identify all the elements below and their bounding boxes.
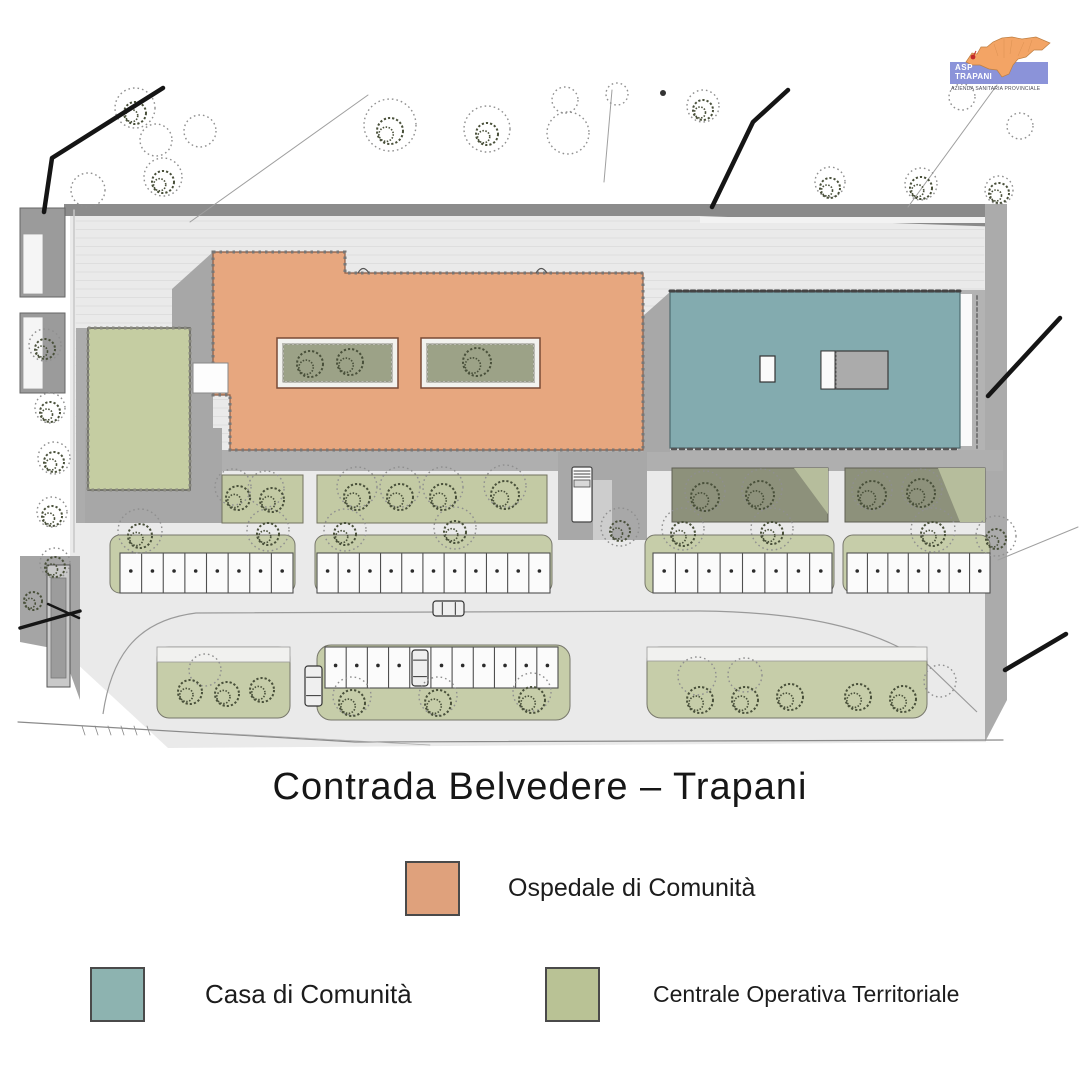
tree-canopy <box>37 497 67 527</box>
wheel-stop-dot <box>482 664 486 668</box>
wheel-stop-dot <box>797 569 801 573</box>
legend-label-cot: Centrale Operativa Territoriale <box>653 967 959 1022</box>
survey-line <box>190 95 368 222</box>
wheel-stop-dot <box>172 569 176 573</box>
shrub-detail <box>44 513 55 524</box>
tree-canopy <box>547 112 589 154</box>
boundary-tick <box>121 726 124 735</box>
wheel-stop-dot <box>752 569 756 573</box>
wheel-stop-dot <box>917 569 921 573</box>
casa-east-walkway <box>960 294 972 446</box>
car <box>412 650 428 686</box>
tree-canopy <box>815 167 845 197</box>
wheel-stop-dot <box>685 569 689 573</box>
wheel-stop-dot <box>730 569 734 573</box>
shrub <box>152 171 174 193</box>
casa-roof-canopy-light <box>821 351 835 389</box>
tree-canopy <box>184 115 216 147</box>
wheel-stop-dot <box>546 664 550 668</box>
legend-swatch-casa <box>90 967 145 1022</box>
tree-canopy <box>606 83 628 105</box>
tree-canopy <box>38 442 70 474</box>
wheel-stop-dot <box>129 569 133 573</box>
tree-canopy <box>687 90 719 122</box>
wheel-stop-dot <box>389 569 393 573</box>
boundary-tick <box>95 726 98 735</box>
wheel-stop-dot <box>495 569 499 573</box>
wheel-stop-dot <box>397 664 401 668</box>
legend-swatch-cot <box>545 967 600 1022</box>
wheel-stop-dot <box>937 569 941 573</box>
parking-stall-group <box>325 647 558 688</box>
van-windshield <box>574 480 590 487</box>
shrub-detail <box>822 185 833 196</box>
tree-canopy <box>140 124 172 156</box>
legend-label-ospedale: Ospedale di Comunità <box>508 861 755 916</box>
wheel-stop-dot <box>237 569 241 573</box>
wheel-stop-dot <box>819 569 823 573</box>
shrub-detail <box>46 459 57 470</box>
ospedale-entrance-canopy <box>193 363 228 393</box>
wheel-stop-dot <box>896 569 900 573</box>
wheel-stop-dot <box>453 569 457 573</box>
wheel-stop-dot <box>347 569 351 573</box>
asp-trapani-logo: ASP TRAPANI AZIENDA SANITARIA PROVINCIAL… <box>948 36 1054 94</box>
existing-building-south-court <box>23 317 43 389</box>
shrub-detail <box>42 409 53 420</box>
van <box>572 467 592 522</box>
island-footpath <box>157 647 290 662</box>
legend-swatch-ospedale <box>405 861 460 916</box>
wheel-stop-dot <box>376 664 380 668</box>
legend-label-casa: Casa di Comunità <box>205 967 412 1022</box>
site-plan-page: Contrada Belvedere – Trapani Ospedale di… <box>0 0 1080 1080</box>
southwest-structure-inner <box>51 578 66 678</box>
site-plan-drawing <box>0 0 1080 760</box>
site-east-border <box>985 204 1007 742</box>
casa-di-comunita-building <box>670 292 960 448</box>
wheel-stop-dot <box>978 569 982 573</box>
wheel-stop-dot <box>707 569 711 573</box>
boundary-wall <box>44 88 163 212</box>
wheel-stop-dot <box>355 664 359 668</box>
wheel-stop-dot <box>368 569 372 573</box>
survey-line <box>998 527 1078 560</box>
boundary-tick <box>134 726 137 735</box>
wheel-stop-dot <box>524 664 528 668</box>
logo-org-text: ASP <box>955 63 973 72</box>
wheel-stop-dot <box>194 569 198 573</box>
north-walkway <box>700 217 995 223</box>
shrub-detail <box>991 190 1002 201</box>
tree-canopy <box>35 393 65 423</box>
wheel-stop-dot <box>326 569 330 573</box>
wheel-stop-dot <box>280 569 284 573</box>
logo-subtitle-text: AZIENDA SANITARIA PROVINCIALE <box>951 86 1040 92</box>
wheel-stop-dot <box>259 569 263 573</box>
survey-line <box>908 85 997 207</box>
existing-building-north-court <box>23 234 43 294</box>
car <box>433 601 464 616</box>
car <box>305 666 322 706</box>
wheel-stop-dot <box>774 569 778 573</box>
wheel-stop-dot <box>440 664 444 668</box>
boundary-tick <box>82 726 85 735</box>
tree-canopy <box>552 87 578 113</box>
shrub <box>476 123 498 145</box>
wheel-stop-dot <box>461 664 465 668</box>
wheel-stop-dot <box>662 569 666 573</box>
small-shrub <box>660 90 666 96</box>
wheel-stop-dot <box>855 569 859 573</box>
tree-canopy <box>364 99 416 151</box>
tree-canopy <box>71 173 105 207</box>
parking-stall-group <box>847 553 990 593</box>
boundary-wall <box>1005 634 1066 670</box>
shrub-detail <box>695 107 706 118</box>
wheel-stop-dot <box>151 569 155 573</box>
boundary-wall <box>712 90 788 207</box>
wheel-stop-dot <box>474 569 478 573</box>
wheel-stop-dot <box>876 569 880 573</box>
parking-stall-group <box>317 553 550 593</box>
casa-roof-opening <box>760 356 775 382</box>
wheel-stop-dot <box>432 569 436 573</box>
wheel-stop-dot <box>538 569 542 573</box>
tree-canopy <box>1007 113 1033 139</box>
shrub <box>910 177 932 199</box>
wheel-stop-dot <box>334 664 338 668</box>
centrale-operativa-territoriale-building <box>88 328 190 490</box>
wheel-stop-dot <box>503 664 507 668</box>
logo-city-text: TRAPANI <box>955 72 992 81</box>
wheel-stop-dot <box>216 569 220 573</box>
wheel-stop-dot <box>958 569 962 573</box>
island-footpath <box>647 647 927 661</box>
wheel-stop-dot <box>411 569 415 573</box>
wheel-stop-dot <box>516 569 520 573</box>
casa-west-shadow <box>643 292 670 452</box>
page-title: Contrada Belvedere – Trapani <box>0 766 1080 809</box>
